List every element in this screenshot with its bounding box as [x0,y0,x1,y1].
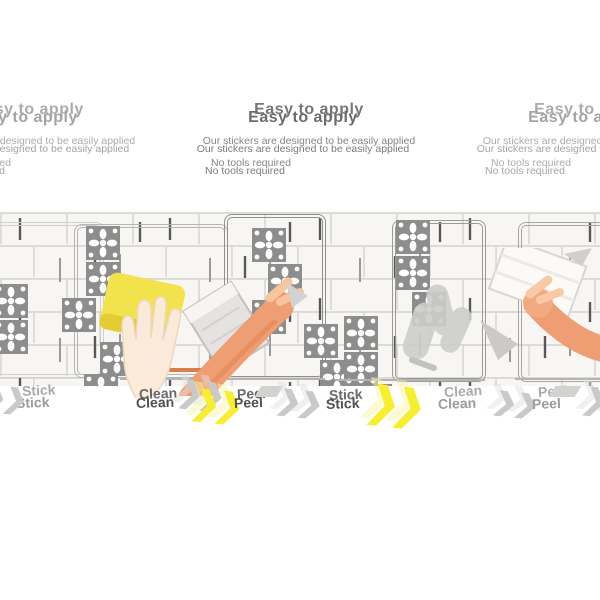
moroccan-tile-ornament-icon [396,220,430,254]
double-chevron-right-icon [0,386,24,414]
moroccan-tile-ornament-icon [0,284,28,318]
header-ghost-right: Easy to apply Easy to apply Our stickers… [375,108,600,184]
subtitle2-ghost: No tools required No tools required [317,164,600,184]
moroccan-tile-ornament-icon [0,320,28,354]
moroccan-tile-ornament-icon [344,316,378,350]
double-chevron-right-icon [586,388,600,418]
ghost-chevron-fragment [549,386,582,397]
product-instruction-image: Easy to apply Easy to apply Our stickers… [0,0,600,600]
stick-step-hand-applying-sticker [446,248,600,373]
double-chevron-right-icon [372,386,422,428]
moroccan-tile-ornament-icon [86,226,120,260]
double-chevron-right-icon [280,390,320,418]
page-title-ghost: Easy to apply Easy to apply [375,108,600,138]
double-chevron-right-icon [496,392,536,418]
